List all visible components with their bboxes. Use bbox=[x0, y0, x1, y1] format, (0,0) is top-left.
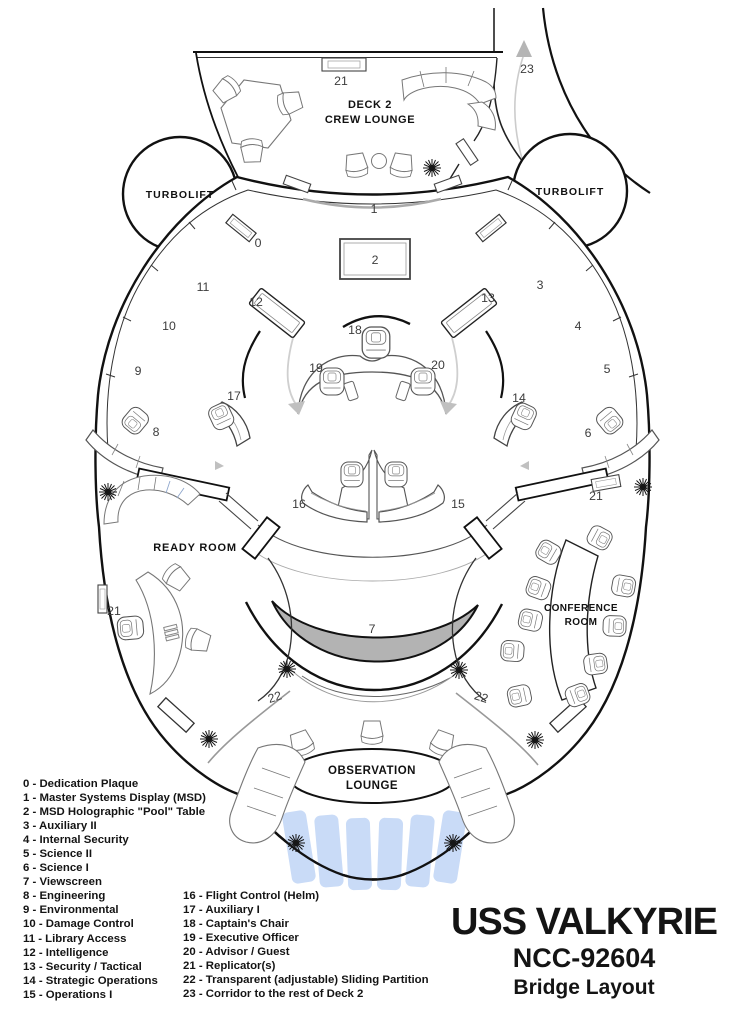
plant-icon bbox=[634, 478, 652, 496]
chair bbox=[611, 574, 637, 598]
legend-item: 22 - Transparent (adjustable) Sliding Pa… bbox=[183, 973, 429, 987]
observation-label-line2: LOUNGE bbox=[346, 780, 398, 792]
chair bbox=[603, 615, 627, 636]
desk-padd bbox=[164, 624, 179, 641]
chair-executive-officer bbox=[320, 368, 344, 395]
callout-18: 18 bbox=[348, 323, 362, 337]
callout-2: 2 bbox=[372, 253, 379, 267]
callout-7: 7 bbox=[369, 622, 376, 636]
legend-item: 15 - Operations I bbox=[23, 988, 206, 1002]
legend-item: 5 - Science II bbox=[23, 847, 206, 861]
plant-icon bbox=[99, 483, 117, 501]
chair bbox=[385, 462, 407, 487]
callout-17: 17 bbox=[227, 389, 241, 403]
title-block: USS VALKYRIE NCC-92604 Bridge Layout bbox=[425, 903, 743, 999]
chair bbox=[117, 615, 145, 640]
legend-column-2: 16 - Flight Control (Helm) 17 - Auxiliar… bbox=[183, 889, 429, 1001]
callout-11: 11 bbox=[197, 280, 210, 294]
legend-item: 17 - Auxiliary I bbox=[183, 903, 429, 917]
callout-0: 0 bbox=[255, 236, 262, 250]
callout-4: 4 bbox=[575, 319, 582, 333]
callout-10: 10 bbox=[162, 319, 176, 333]
lounge-stool bbox=[361, 721, 383, 744]
callout-23: 23 bbox=[520, 62, 534, 76]
callout-14: 14 bbox=[512, 391, 526, 405]
crew-lounge-replicator bbox=[322, 58, 366, 71]
legend-item: 8 - Engineering bbox=[23, 889, 206, 903]
callout-21-ready: 21 bbox=[107, 604, 121, 618]
deck2-label-line1: DECK 2 bbox=[348, 99, 392, 111]
plant-icon bbox=[450, 661, 468, 679]
conference-label-line2: ROOM bbox=[565, 617, 598, 628]
observation-label-line1: OBSERVATION bbox=[328, 765, 416, 777]
turbolift-left-label: TURBOLIFT bbox=[146, 189, 215, 201]
chair bbox=[500, 640, 524, 662]
legend-item: 7 - Viewscreen bbox=[23, 875, 206, 889]
legend-item: 6 - Science I bbox=[23, 861, 206, 875]
callout-12: 12 bbox=[249, 295, 263, 309]
chair bbox=[583, 652, 609, 675]
legend-item: 19 - Executive Officer bbox=[183, 931, 429, 945]
corridor-arrow-icon bbox=[516, 40, 532, 57]
ship-name: USS VALKYRIE bbox=[425, 903, 743, 943]
plant-icon bbox=[287, 834, 305, 852]
legend-item: 10 - Damage Control bbox=[23, 917, 206, 931]
legend-item: 11 - Library Access bbox=[23, 932, 206, 946]
turbolift-right-label: TURBOLIFT bbox=[536, 186, 605, 198]
legend-item: 12 - Intelligence bbox=[23, 946, 206, 960]
captains-chair bbox=[362, 327, 390, 358]
callout-6: 6 bbox=[585, 426, 592, 440]
callout-3: 3 bbox=[537, 278, 544, 292]
legend-item: 9 - Environmental bbox=[23, 903, 206, 917]
callout-21-conference: 21 bbox=[589, 489, 603, 503]
legend-item: 14 - Strategic Operations bbox=[23, 974, 206, 988]
plant-icon bbox=[423, 159, 441, 177]
legend-column-1: 0 - Dedication Plaque 1 - Master Systems… bbox=[23, 777, 206, 1002]
deck2-label-line2: CREW LOUNGE bbox=[325, 114, 415, 126]
legend-item: 23 - Corridor to the rest of Deck 2 bbox=[183, 987, 429, 1001]
callout-20: 20 bbox=[431, 358, 445, 372]
legend-item: 16 - Flight Control (Helm) bbox=[183, 889, 429, 903]
callout-5: 5 bbox=[604, 362, 611, 376]
crew-lounge-side-table bbox=[372, 154, 387, 169]
plant-icon bbox=[526, 731, 544, 749]
crew-lounge-stool bbox=[241, 138, 264, 162]
callout-8: 8 bbox=[153, 425, 160, 439]
conference-label-line1: CONFERENCE bbox=[544, 603, 618, 614]
callout-1: 1 bbox=[371, 202, 378, 216]
legend-item: 3 - Auxiliary II bbox=[23, 819, 206, 833]
chair bbox=[341, 462, 363, 487]
legend-item: 13 - Security / Tactical bbox=[23, 960, 206, 974]
callout-21-lounge: 21 bbox=[334, 74, 348, 88]
callout-13: 13 bbox=[481, 291, 495, 305]
legend-item: 20 - Advisor / Guest bbox=[183, 945, 429, 959]
ready-room-label: READY ROOM bbox=[153, 542, 237, 554]
plant-icon bbox=[278, 660, 296, 678]
plant-icon bbox=[200, 730, 218, 748]
callout-15: 15 bbox=[451, 497, 465, 511]
ready-room-replicator bbox=[98, 585, 107, 613]
legend-item: 18 - Captain's Chair bbox=[183, 917, 429, 931]
legend-item: 2 - MSD Holographic "Pool" Table bbox=[23, 805, 206, 819]
bridge-layout-page: DECK 2 CREW LOUNGE TURBOLIFT TURBOLIFT R… bbox=[0, 0, 745, 1024]
chair-advisor-guest bbox=[411, 368, 435, 395]
legend-item: 4 - Internal Security bbox=[23, 833, 206, 847]
drawing-subtitle: Bridge Layout bbox=[425, 976, 743, 999]
ship-registry: NCC-92604 bbox=[425, 944, 743, 974]
legend-item: 0 - Dedication Plaque bbox=[23, 777, 206, 791]
callout-16: 16 bbox=[292, 497, 306, 511]
legend-item: 21 - Replicator(s) bbox=[183, 959, 429, 973]
callout-9: 9 bbox=[135, 364, 142, 378]
callout-19: 19 bbox=[309, 361, 323, 375]
legend-item: 1 - Master Systems Display (MSD) bbox=[23, 791, 206, 805]
plant-icon bbox=[444, 834, 462, 852]
